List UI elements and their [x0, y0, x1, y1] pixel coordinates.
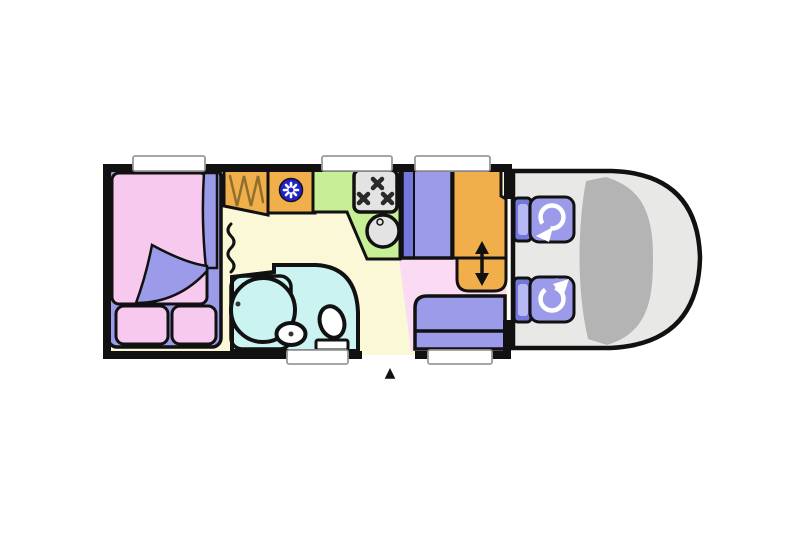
window-dinette-bottom — [428, 350, 492, 364]
dinette-bench — [415, 296, 505, 349]
window-bathroom — [287, 350, 348, 364]
bathroom — [231, 265, 358, 351]
window-bedroom — [133, 156, 205, 171]
sink-tap-icon — [377, 219, 383, 225]
bench-seat — [415, 296, 505, 349]
pillow-right — [172, 306, 216, 344]
entrance-door-marker-icon: ▲ — [385, 365, 396, 381]
basin-plug-icon — [289, 332, 294, 337]
wall-right-top — [504, 164, 512, 199]
fridge-unit — [402, 167, 452, 258]
wall-right-bottom — [503, 320, 511, 359]
duvet-edge — [203, 173, 217, 268]
pillow-left — [116, 306, 168, 344]
fridge-side — [402, 167, 414, 258]
double-bed — [108, 168, 221, 347]
seat-backrest-face — [518, 284, 528, 316]
toilet-base — [316, 340, 348, 350]
table-top — [453, 167, 506, 258]
seat-backrest-face — [518, 204, 528, 235]
dinette-table — [453, 167, 506, 291]
window-kitchen — [322, 156, 392, 171]
window-dinette-top — [415, 156, 490, 171]
fan-hub-icon — [289, 188, 294, 193]
cab-seat-top — [514, 197, 574, 242]
heater-unit — [268, 167, 315, 213]
hob — [354, 170, 397, 212]
wall-left — [103, 164, 111, 359]
floorplan-canvas: ▲ — [0, 0, 800, 533]
wardrobe — [224, 167, 268, 215]
shower-drain-icon — [236, 302, 241, 307]
cab-seat-bottom — [514, 277, 574, 322]
